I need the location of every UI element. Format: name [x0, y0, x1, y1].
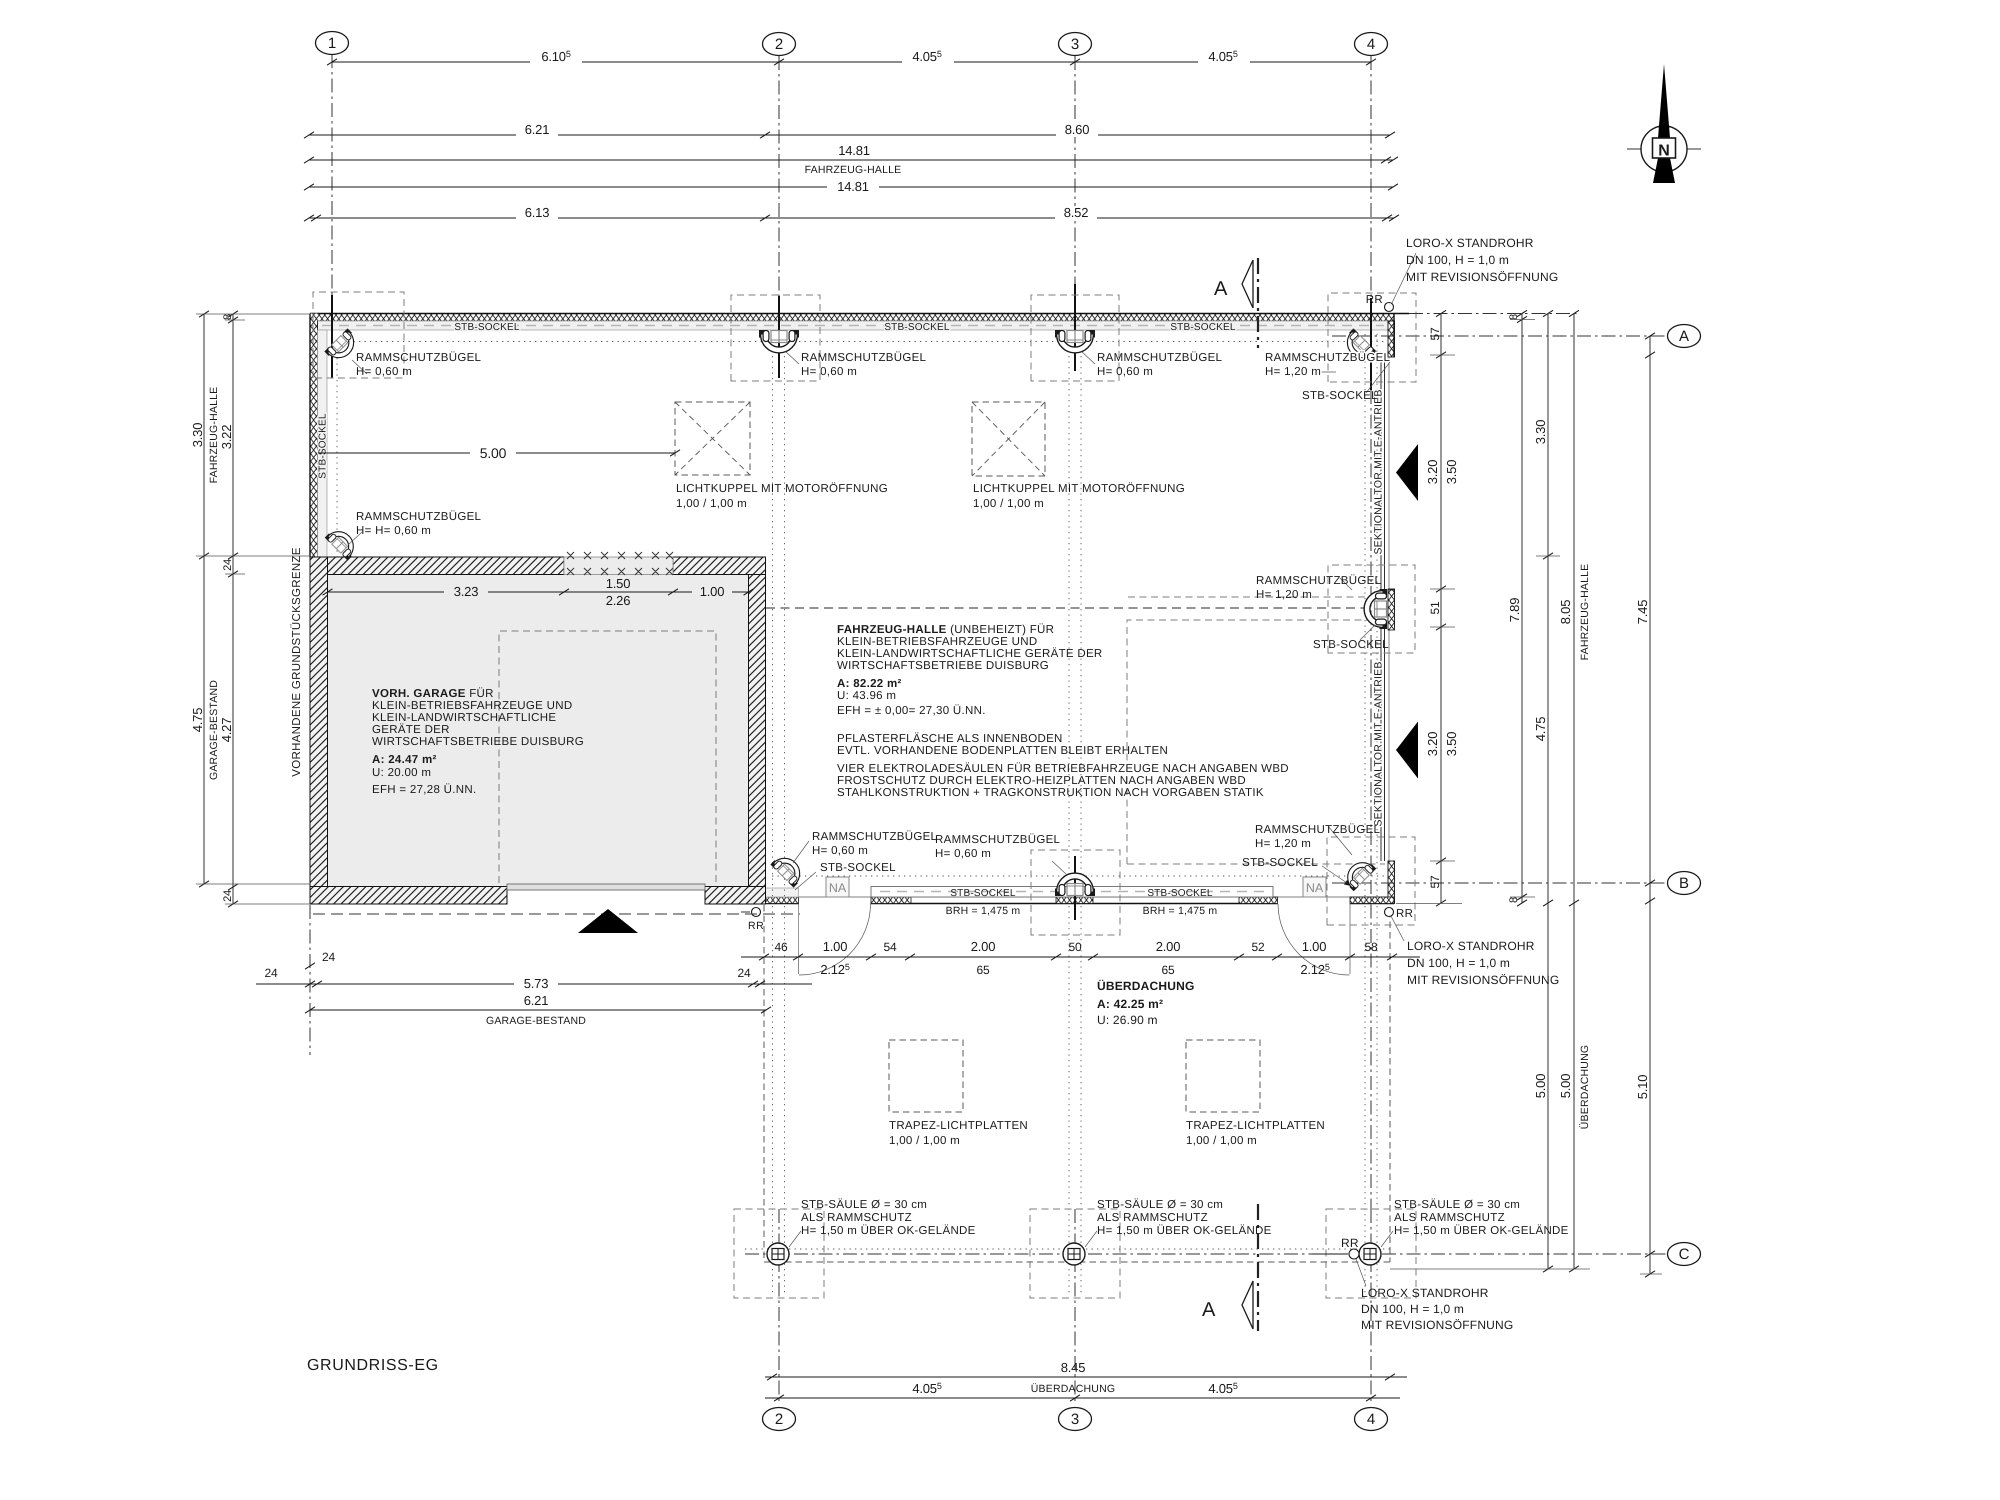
- svg-text:N: N: [1658, 143, 1670, 160]
- svg-text:MIT REVISIONSÖFFNUNG: MIT REVISIONSÖFFNUNG: [1361, 1318, 1513, 1332]
- svg-text:6.21: 6.21: [524, 993, 549, 1008]
- svg-text:RR: RR: [1396, 908, 1413, 920]
- svg-text:RAMMSCHUTZBÜGEL: RAMMSCHUTZBÜGEL: [1265, 351, 1391, 364]
- svg-text:RAMMSCHUTZBÜGEL: RAMMSCHUTZBÜGEL: [935, 833, 1061, 846]
- svg-text:NA: NA: [829, 881, 847, 895]
- svg-text:WIRTSCHAFTSBETRIEBE DUISBURG: WIRTSCHAFTSBETRIEBE DUISBURG: [372, 736, 584, 748]
- svg-text:U: 26.90 m: U: 26.90 m: [1097, 1013, 1158, 1027]
- svg-text:1,00 / 1,00 m: 1,00 / 1,00 m: [1186, 1135, 1257, 1147]
- svg-text:5.10: 5.10: [1635, 1075, 1650, 1100]
- svg-text:1,00 / 1,00 m: 1,00 / 1,00 m: [889, 1135, 960, 1147]
- svg-text:52: 52: [1252, 940, 1265, 954]
- svg-text:MIT REVISIONSÖFFNUNG: MIT REVISIONSÖFFNUNG: [1407, 973, 1559, 987]
- svg-text:57: 57: [1428, 875, 1442, 888]
- svg-text:FAHRZEUG-HALLE: FAHRZEUG-HALLE: [805, 164, 902, 176]
- svg-text:FAHRZEUG-HALLE: FAHRZEUG-HALLE: [1579, 564, 1591, 661]
- svg-text:24: 24: [322, 950, 335, 964]
- svg-text:H= 0,60 m: H= 0,60 m: [356, 366, 412, 378]
- svg-text:3.30: 3.30: [1533, 420, 1548, 445]
- svg-text:H= 1,20 m: H= 1,20 m: [1265, 366, 1321, 378]
- svg-text:ALS RAMMSCHUTZ: ALS RAMMSCHUTZ: [1394, 1212, 1505, 1224]
- svg-text:RAMMSCHUTZBÜGEL: RAMMSCHUTZBÜGEL: [356, 510, 482, 523]
- svg-text:VORH. GARAGE FÜR: VORH. GARAGE FÜR: [372, 687, 494, 700]
- svg-text:A: 42.25 m²: A: 42.25 m²: [1097, 997, 1163, 1011]
- svg-text:STB-SOCKEL: STB-SOCKEL: [1147, 888, 1213, 899]
- svg-text:ÜBERDACHUNG: ÜBERDACHUNG: [1097, 979, 1195, 993]
- svg-text:H= 0,60 m: H= 0,60 m: [935, 848, 991, 860]
- svg-text:SEKTIONALTOR MIT E-ANTRIEB: SEKTIONALTOR MIT E-ANTRIEB: [1373, 661, 1385, 826]
- svg-text:RAMMSCHUTZBÜGEL: RAMMSCHUTZBÜGEL: [812, 830, 938, 843]
- svg-text:KLEIN-BETRIEBSFAHRZEUGE UND: KLEIN-BETRIEBSFAHRZEUGE UND: [372, 700, 572, 712]
- svg-text:7.45: 7.45: [1635, 600, 1650, 625]
- svg-text:2.00: 2.00: [971, 939, 996, 954]
- svg-text:3.20: 3.20: [1425, 460, 1440, 485]
- svg-text:8.45: 8.45: [1061, 1360, 1086, 1375]
- svg-text:H= 1,50 m ÜBER OK-GELÄNDE: H= 1,50 m ÜBER OK-GELÄNDE: [1394, 1224, 1569, 1237]
- svg-text:ÜBERDACHUNG: ÜBERDACHUNG: [1579, 1045, 1591, 1129]
- svg-text:RAMMSCHUTZBÜGEL: RAMMSCHUTZBÜGEL: [1255, 823, 1381, 836]
- svg-text:GARAGE-BESTAND: GARAGE-BESTAND: [208, 680, 220, 780]
- svg-text:4.75: 4.75: [190, 708, 205, 733]
- svg-text:2: 2: [775, 36, 783, 53]
- svg-text:3.23: 3.23: [454, 584, 479, 599]
- svg-text:EVTL. VORHANDENE BODENPLATTEN: EVTL. VORHANDENE BODENPLATTEN BLEIBT ERH…: [837, 745, 1168, 757]
- svg-text:LICHTKUPPEL MIT MOTORÖFFNUNG: LICHTKUPPEL MIT MOTORÖFFNUNG: [676, 482, 888, 495]
- svg-text:7.89: 7.89: [1507, 598, 1522, 623]
- svg-text:RAMMSCHUTZBÜGEL: RAMMSCHUTZBÜGEL: [356, 351, 482, 364]
- svg-text:24: 24: [222, 890, 234, 902]
- svg-text:DN 100, H = 1,0 m: DN 100, H = 1,0 m: [1407, 956, 1510, 970]
- svg-text:2: 2: [775, 1411, 783, 1428]
- svg-text:A: A: [1202, 1299, 1216, 1321]
- svg-text:ALS RAMMSCHUTZ: ALS RAMMSCHUTZ: [801, 1212, 912, 1224]
- svg-text:VIER ELEKTROLADESÄULEN FÜR BET: VIER ELEKTROLADESÄULEN FÜR BETRIEBFAHRZE…: [837, 762, 1289, 775]
- svg-text:1,00 / 1,00 m: 1,00 / 1,00 m: [973, 498, 1044, 510]
- svg-text:RAMMSCHUTZBÜGEL: RAMMSCHUTZBÜGEL: [801, 351, 927, 364]
- svg-text:24: 24: [738, 966, 751, 980]
- svg-text:1.50: 1.50: [606, 576, 631, 591]
- svg-text:8: 8: [1508, 897, 1520, 903]
- svg-text:8.60: 8.60: [1065, 122, 1090, 137]
- svg-text:4: 4: [1367, 36, 1375, 53]
- svg-text:8: 8: [1508, 314, 1520, 320]
- svg-text:LORO-X STANDROHR: LORO-X STANDROHR: [1406, 236, 1534, 250]
- svg-text:5.00: 5.00: [1533, 1074, 1548, 1099]
- svg-text:EFH = ± 0,00= 27,30 Ü.NN.: EFH = ± 0,00= 27,30 Ü.NN.: [837, 704, 986, 717]
- svg-text:TRAPEZ-LICHTPLATTEN: TRAPEZ-LICHTPLATTEN: [889, 1120, 1028, 1132]
- svg-text:ÜBERDACHUNG: ÜBERDACHUNG: [1031, 1383, 1115, 1395]
- svg-text:3.22: 3.22: [219, 425, 234, 450]
- svg-text:3: 3: [1071, 36, 1079, 53]
- svg-text:A: A: [1214, 278, 1228, 300]
- svg-text:2.00: 2.00: [1156, 939, 1181, 954]
- svg-text:4.27: 4.27: [219, 718, 234, 743]
- svg-text:STB-SÄULE Ø = 30 cm: STB-SÄULE Ø = 30 cm: [1097, 1198, 1223, 1211]
- svg-text:H= 1,20 m: H= 1,20 m: [1256, 589, 1312, 601]
- svg-text:1,00 / 1,00 m: 1,00 / 1,00 m: [676, 498, 747, 510]
- svg-text:5.00: 5.00: [1558, 1074, 1573, 1099]
- svg-text:C: C: [1679, 1246, 1690, 1263]
- svg-text:RR: RR: [1366, 294, 1383, 306]
- svg-text:BRH = 1,475 m: BRH = 1,475 m: [1143, 905, 1218, 917]
- svg-text:3.50: 3.50: [1444, 732, 1459, 757]
- svg-text:ALS RAMMSCHUTZ: ALS RAMMSCHUTZ: [1097, 1212, 1208, 1224]
- svg-text:WIRTSCHAFTSBETRIEBE DUISBURG: WIRTSCHAFTSBETRIEBE DUISBURG: [837, 660, 1049, 672]
- svg-text:NA: NA: [1306, 881, 1324, 895]
- svg-text:VORHANDENE GRUNDSTÜCKSGRENZE: VORHANDENE GRUNDSTÜCKSGRENZE: [290, 547, 303, 777]
- svg-text:8.52: 8.52: [1064, 205, 1089, 220]
- svg-text:STB-SOCKEL: STB-SOCKEL: [950, 888, 1016, 899]
- svg-text:B: B: [1679, 875, 1689, 892]
- svg-text:4.75: 4.75: [1533, 717, 1548, 742]
- svg-text:3: 3: [1071, 1411, 1079, 1428]
- svg-text:STB-SOCKEL: STB-SOCKEL: [1302, 390, 1378, 402]
- svg-text:LORO-X STANDROHR: LORO-X STANDROHR: [1407, 939, 1535, 953]
- svg-text:EFH = 27,28 Ü.NN.: EFH = 27,28 Ü.NN.: [372, 783, 476, 796]
- svg-text:KLEIN-BETRIEBSFAHRZEUGE UND: KLEIN-BETRIEBSFAHRZEUGE UND: [837, 636, 1037, 648]
- svg-text:STB-SOCKEL: STB-SOCKEL: [318, 413, 329, 479]
- svg-text:1.00: 1.00: [823, 939, 848, 954]
- svg-text:PFLASTERFLÄSCHE ALS INNENBODEN: PFLASTERFLÄSCHE ALS INNENBODEN: [837, 732, 1063, 745]
- svg-text:STB-SOCKEL: STB-SOCKEL: [1242, 857, 1318, 869]
- svg-text:54: 54: [884, 940, 897, 954]
- svg-text:5.00: 5.00: [480, 445, 507, 461]
- svg-text:RR: RR: [748, 920, 764, 932]
- svg-text:14.81: 14.81: [838, 143, 870, 158]
- svg-text:3.30: 3.30: [190, 423, 205, 448]
- svg-text:4: 4: [1367, 1411, 1375, 1428]
- svg-text:3.50: 3.50: [1444, 460, 1459, 485]
- svg-text:FAHRZEUG-HALLE (UNBEHEIZT) FÜR: FAHRZEUG-HALLE (UNBEHEIZT) FÜR: [837, 623, 1054, 636]
- svg-text:STB-SOCKEL: STB-SOCKEL: [820, 862, 896, 874]
- svg-text:STB-SÄULE Ø = 30 cm: STB-SÄULE Ø = 30 cm: [801, 1198, 927, 1211]
- svg-text:GARAGE-BESTAND: GARAGE-BESTAND: [486, 1015, 586, 1027]
- svg-text:SEKTIONALTOR MIT E-ANTRIEB: SEKTIONALTOR MIT E-ANTRIEB: [1373, 389, 1385, 554]
- svg-text:DN 100, H = 1,0 m: DN 100, H = 1,0 m: [1406, 253, 1509, 267]
- svg-text:LORO-X STANDROHR: LORO-X STANDROHR: [1361, 1286, 1489, 1300]
- svg-text:46: 46: [775, 940, 788, 954]
- svg-text:51: 51: [1428, 601, 1442, 614]
- svg-text:LICHTKUPPEL MIT MOTORÖFFNUNG: LICHTKUPPEL MIT MOTORÖFFNUNG: [973, 482, 1185, 495]
- svg-text:H= 1,50 m ÜBER OK-GELÄNDE: H= 1,50 m ÜBER OK-GELÄNDE: [1097, 1224, 1272, 1237]
- svg-text:8.05: 8.05: [1558, 600, 1573, 625]
- svg-text:MIT REVISIONSÖFFNUNG: MIT REVISIONSÖFFNUNG: [1406, 270, 1558, 284]
- svg-text:STAHLKONSTRUKTION + TRAGKONSTR: STAHLKONSTRUKTION + TRAGKONSTRUKTION NAC…: [837, 787, 1264, 799]
- svg-text:57: 57: [1428, 327, 1442, 340]
- svg-text:KLEIN-LANDWIRTSCHAFTLICHE: KLEIN-LANDWIRTSCHAFTLICHE: [372, 712, 556, 724]
- svg-text:DN 100, H = 1,0 m: DN 100, H = 1,0 m: [1361, 1302, 1464, 1316]
- svg-text:A: A: [1679, 328, 1689, 345]
- svg-text:STB-SOCKEL: STB-SOCKEL: [1313, 639, 1389, 651]
- svg-text:8: 8: [222, 314, 234, 320]
- svg-text:GERÄTE DER: GERÄTE DER: [372, 723, 450, 736]
- svg-text:STB-SOCKEL: STB-SOCKEL: [454, 322, 520, 333]
- svg-text:TRAPEZ-LICHTPLATTEN: TRAPEZ-LICHTPLATTEN: [1186, 1120, 1325, 1132]
- svg-text:FROSTSCHUTZ DURCH ELEKTRO-HEIZ: FROSTSCHUTZ DURCH ELEKTRO-HEIZPLATTEN NA…: [837, 775, 1246, 787]
- svg-text:STB-SOCKEL: STB-SOCKEL: [1170, 322, 1236, 333]
- svg-text:3.20: 3.20: [1425, 732, 1440, 757]
- svg-text:STB-SÄULE Ø = 30 cm: STB-SÄULE Ø = 30 cm: [1394, 1198, 1520, 1211]
- svg-text:2.26: 2.26: [606, 593, 631, 608]
- svg-text:A: 24.47 m²: A: 24.47 m²: [372, 754, 437, 766]
- svg-text:U: 43.96 m: U: 43.96 m: [837, 690, 896, 702]
- svg-text:RAMMSCHUTZBÜGEL: RAMMSCHUTZBÜGEL: [1097, 351, 1223, 364]
- svg-text:H= 0,60 m: H= 0,60 m: [812, 845, 868, 857]
- svg-text:6.13: 6.13: [525, 205, 550, 220]
- svg-text:1.00: 1.00: [700, 584, 725, 599]
- svg-text:1.00: 1.00: [1302, 939, 1327, 954]
- svg-text:58: 58: [1365, 940, 1378, 954]
- svg-text:RAMMSCHUTZBÜGEL: RAMMSCHUTZBÜGEL: [1256, 574, 1382, 587]
- svg-text:50: 50: [1069, 940, 1082, 954]
- svg-text:H= 0,60 m: H= 0,60 m: [1097, 366, 1153, 378]
- svg-text:A: 82.22 m²: A: 82.22 m²: [837, 678, 902, 690]
- svg-text:H= H= 0,60 m: H= H= 0,60 m: [356, 525, 431, 537]
- svg-text:GRUNDRISS-EG: GRUNDRISS-EG: [307, 1357, 439, 1374]
- svg-text:H= 1,50 m ÜBER OK-GELÄNDE: H= 1,50 m ÜBER OK-GELÄNDE: [801, 1224, 976, 1237]
- svg-text:24: 24: [265, 966, 278, 980]
- svg-text:STB-SOCKEL: STB-SOCKEL: [884, 322, 950, 333]
- svg-text:14.81: 14.81: [837, 179, 869, 194]
- svg-text:65: 65: [977, 963, 990, 977]
- svg-text:H= 0,60 m: H= 0,60 m: [801, 366, 857, 378]
- svg-text:FAHRZEUG-HALLE: FAHRZEUG-HALLE: [208, 387, 220, 484]
- svg-text:BRH = 1,475 m: BRH = 1,475 m: [946, 905, 1021, 917]
- svg-text:65: 65: [1162, 963, 1175, 977]
- svg-text:24: 24: [222, 559, 234, 571]
- svg-text:H= 1,20 m: H= 1,20 m: [1255, 838, 1311, 850]
- svg-text:U: 20.00 m: U: 20.00 m: [372, 767, 431, 779]
- svg-text:1: 1: [328, 35, 336, 52]
- svg-text:RR: RR: [1341, 1236, 1359, 1250]
- svg-text:6.21: 6.21: [525, 122, 550, 137]
- svg-text:5.73: 5.73: [524, 976, 549, 991]
- svg-text:KLEIN-LANDWIRTSCHAFTLICHE GERÄ: KLEIN-LANDWIRTSCHAFTLICHE GERÄTE DER: [837, 647, 1103, 660]
